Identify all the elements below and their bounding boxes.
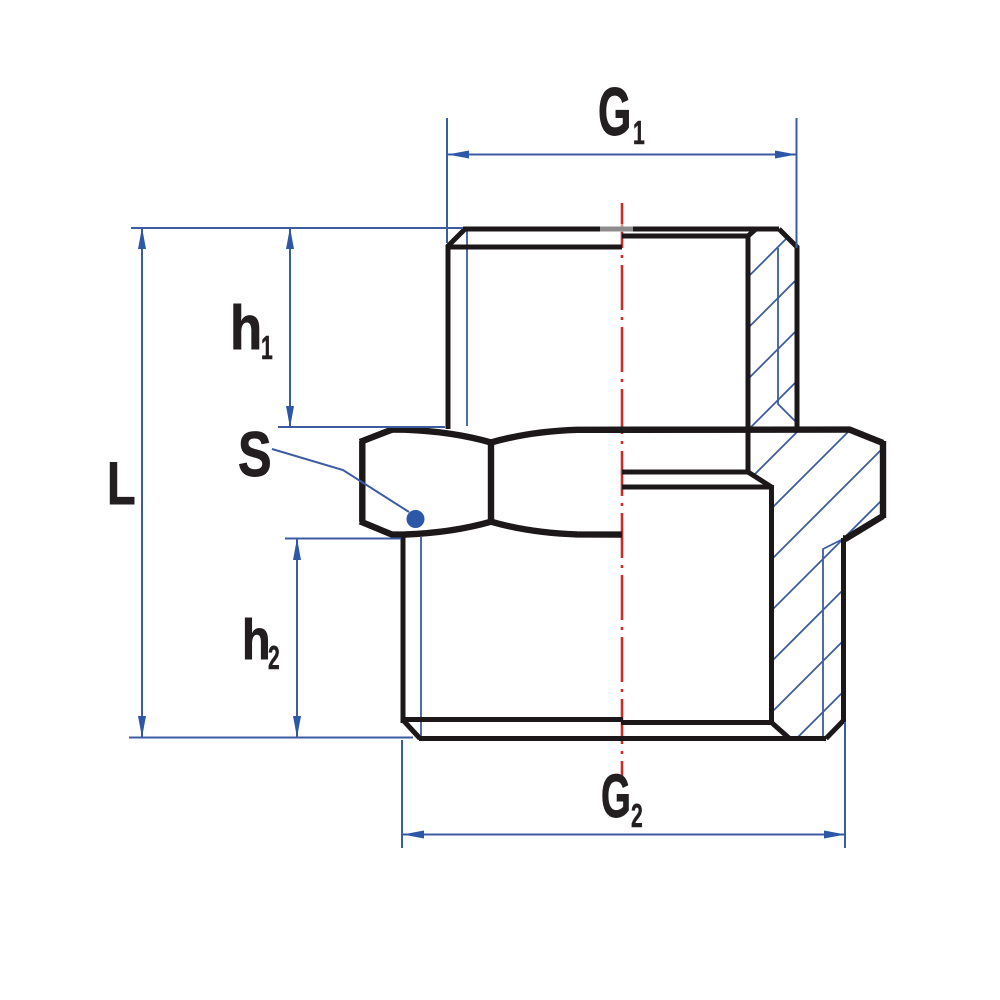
- svg-text:h: h: [230, 294, 262, 363]
- svg-text:S: S: [238, 420, 272, 491]
- svg-text:2: 2: [631, 797, 643, 834]
- svg-text:1: 1: [633, 114, 645, 151]
- svg-text:1: 1: [261, 329, 273, 366]
- svg-text:L: L: [107, 450, 136, 517]
- svg-text:2: 2: [268, 639, 280, 676]
- svg-text:G: G: [601, 762, 631, 830]
- svg-text:G: G: [598, 75, 631, 150]
- svg-text:h: h: [242, 609, 271, 672]
